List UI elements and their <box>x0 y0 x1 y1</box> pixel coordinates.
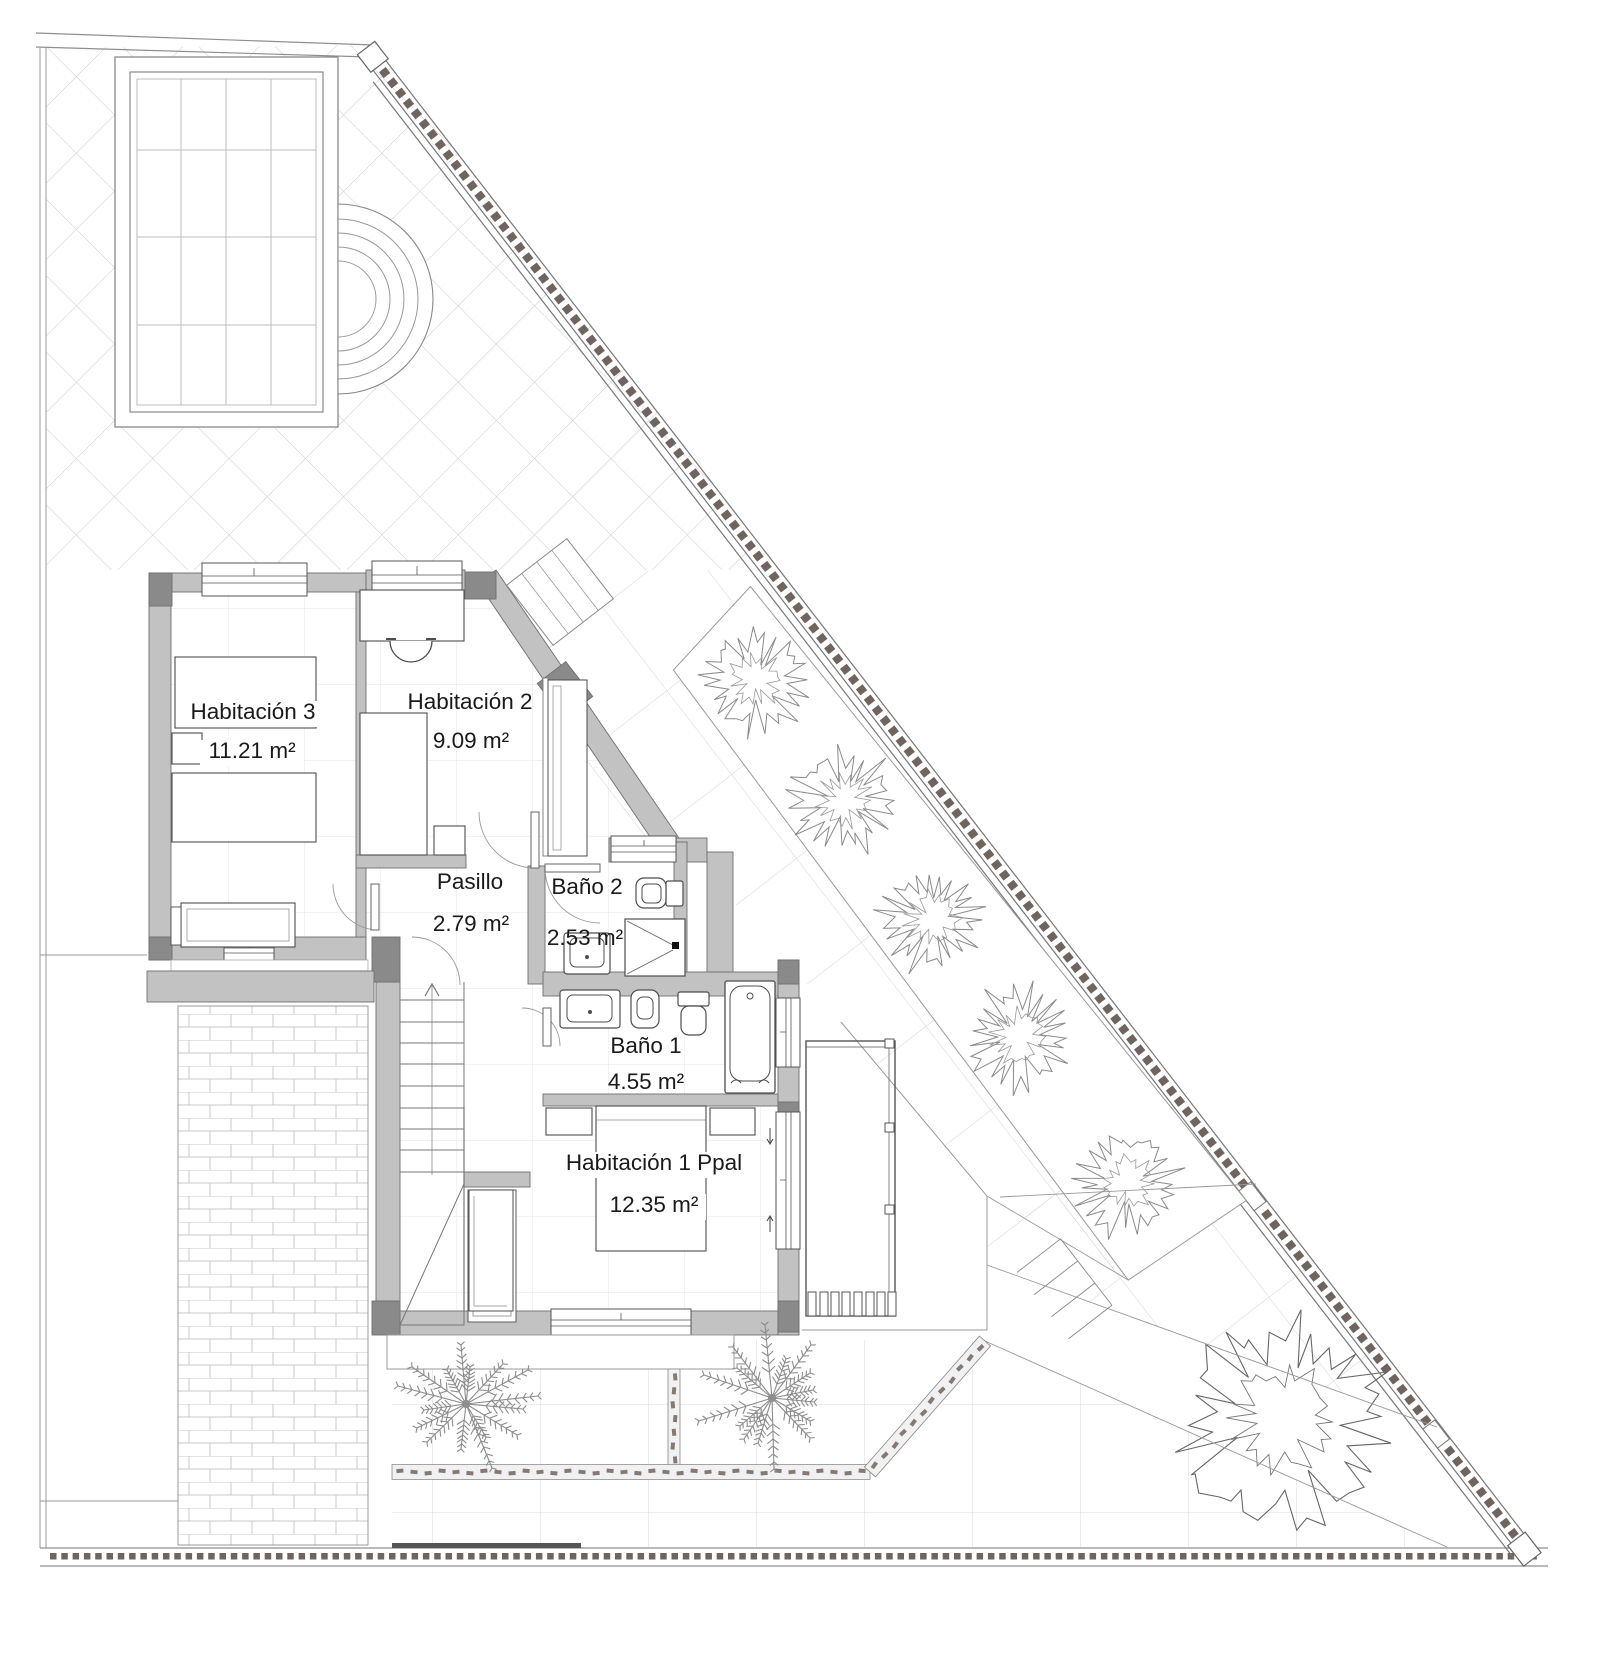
svg-text:Baño 1: Baño 1 <box>610 1033 681 1058</box>
svg-text:2.53 m²: 2.53 m² <box>547 925 624 950</box>
svg-text:Pasillo: Pasillo <box>437 869 503 894</box>
svg-text:2.79 m²: 2.79 m² <box>433 911 510 936</box>
svg-text:11.21 m²: 11.21 m² <box>208 738 296 763</box>
svg-text:4.55 m²: 4.55 m² <box>608 1069 685 1094</box>
svg-text:Habitación 1 Ppal: Habitación 1 Ppal <box>566 1150 742 1175</box>
svg-text:Habitación 3: Habitación 3 <box>190 699 315 724</box>
svg-text:9.09 m²: 9.09 m² <box>433 728 510 753</box>
svg-text:Baño 2: Baño 2 <box>551 874 622 899</box>
svg-text:12.35 m²: 12.35 m² <box>610 1192 699 1217</box>
svg-text:Habitación 2: Habitación 2 <box>407 689 532 714</box>
